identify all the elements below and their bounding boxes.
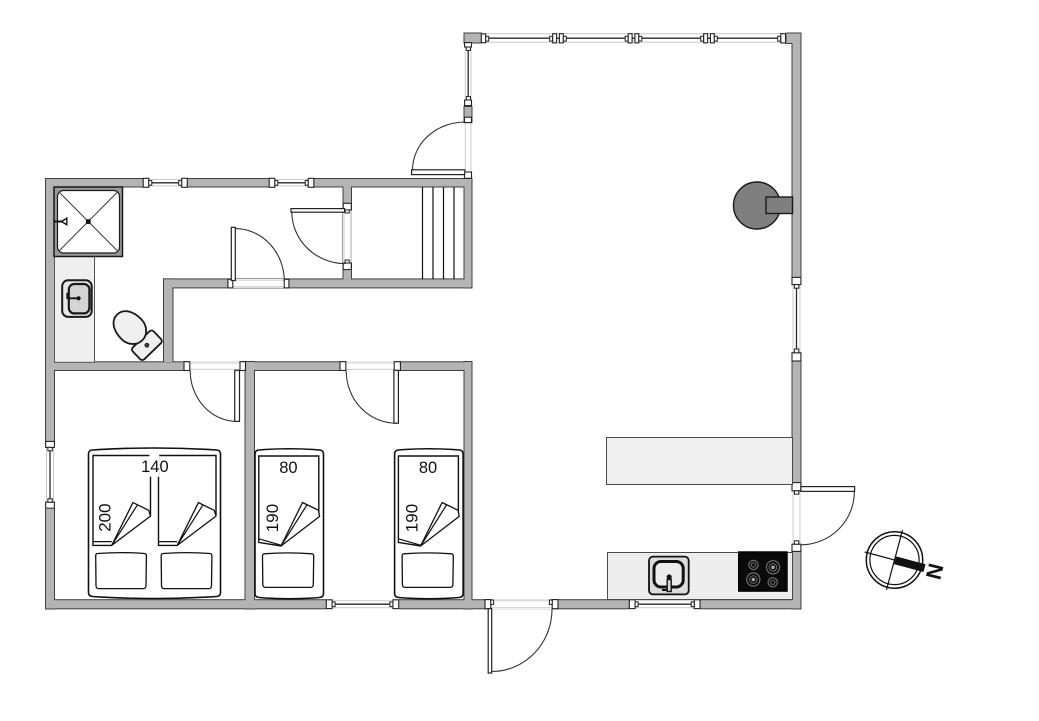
svg-text:N: N [921,561,948,582]
svg-text:140: 140 [141,458,169,476]
svg-text:200: 200 [95,503,114,531]
